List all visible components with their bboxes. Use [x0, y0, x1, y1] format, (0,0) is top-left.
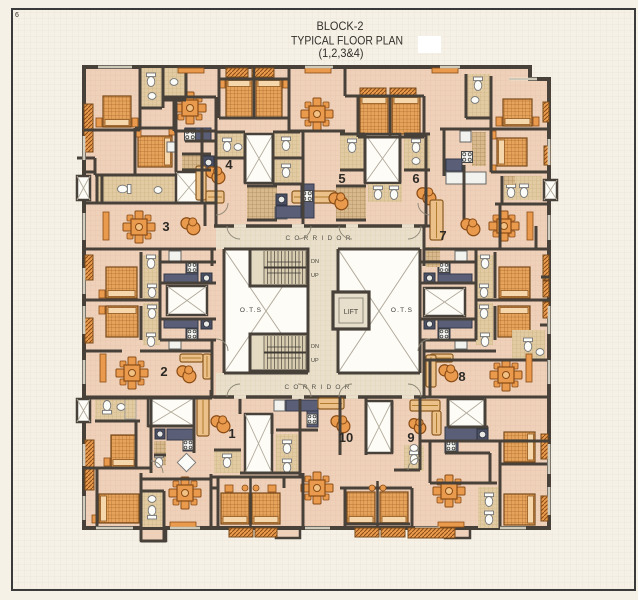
svg-text:(1,2,3&4): (1,2,3&4): [319, 46, 364, 60]
svg-text:5: 5: [338, 171, 345, 186]
svg-text:O.T.S: O.T.S: [240, 307, 262, 314]
svg-text:4: 4: [225, 157, 233, 172]
svg-text:1: 1: [228, 426, 235, 441]
svg-text:DN: DN: [311, 344, 319, 350]
svg-text:UP: UP: [311, 358, 319, 364]
svg-text:BLOCK-2: BLOCK-2: [317, 19, 364, 33]
svg-text:7: 7: [439, 228, 446, 243]
svg-text:9: 9: [407, 430, 414, 445]
svg-text:O.T.S: O.T.S: [391, 307, 413, 314]
svg-text:6: 6: [412, 171, 419, 186]
svg-text:LIFT: LIFT: [344, 309, 359, 316]
svg-text:UP: UP: [311, 273, 319, 279]
svg-text:2: 2: [160, 364, 167, 379]
svg-text:DN: DN: [311, 259, 319, 265]
svg-text:8: 8: [458, 369, 465, 384]
svg-text:10: 10: [339, 430, 353, 445]
svg-text:3: 3: [162, 219, 169, 234]
svg-text:6: 6: [15, 12, 19, 19]
